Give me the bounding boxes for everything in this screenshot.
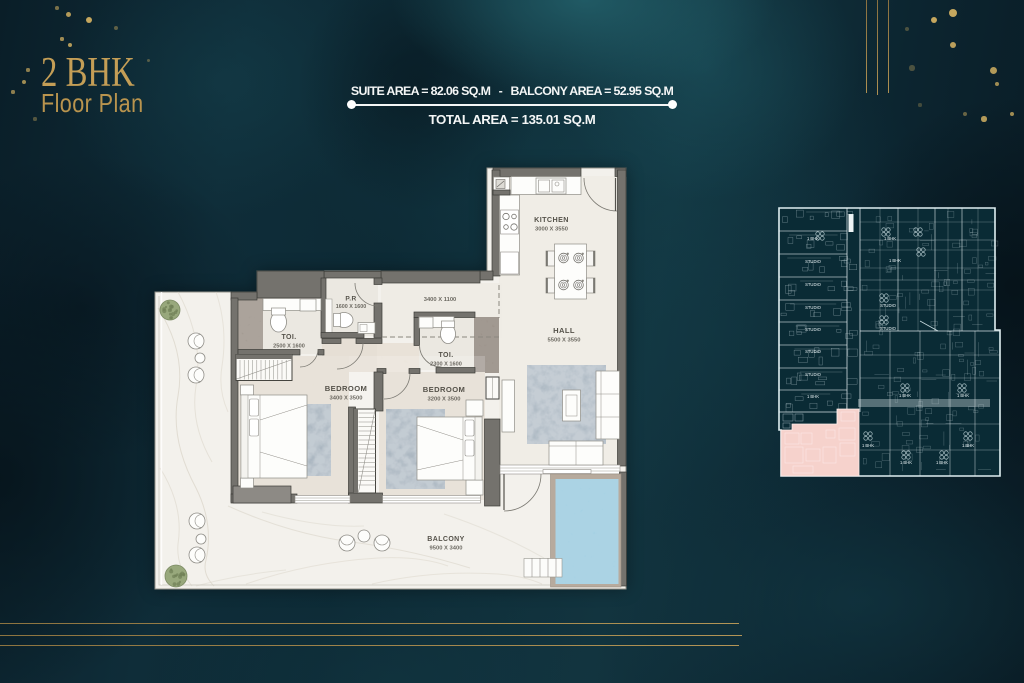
svg-text:2300 X 1600: 2300 X 1600 (430, 362, 462, 368)
svg-text:3200 X 3500: 3200 X 3500 (428, 397, 461, 403)
svg-text:P.R: P.R (345, 296, 356, 303)
svg-text:TOI.: TOI. (438, 352, 453, 359)
svg-text:2500 X 1600: 2500 X 1600 (273, 344, 305, 350)
svg-text:3400 X 1100: 3400 X 1100 (424, 297, 457, 303)
svg-text:STUDIO: STUDIO (805, 327, 822, 332)
svg-text:BALCONY: BALCONY (427, 536, 464, 543)
svg-text:1 BHK: 1 BHK (900, 460, 912, 465)
svg-text:STUDIO: STUDIO (805, 305, 822, 310)
svg-text:1 BHK: 1 BHK (962, 443, 974, 448)
svg-text:1 BHK: 1 BHK (889, 258, 901, 263)
svg-text:HALL: HALL (553, 326, 575, 335)
svg-text:1 BHK: 1 BHK (807, 236, 819, 241)
svg-text:1 BHK: 1 BHK (862, 443, 874, 448)
svg-text:3400 X 3500: 3400 X 3500 (330, 396, 363, 402)
svg-text:STUDIO: STUDIO (805, 372, 822, 377)
svg-text:1 BHK: 1 BHK (899, 393, 911, 398)
svg-text:STUDIO: STUDIO (880, 326, 897, 331)
svg-text:KITCHEN: KITCHEN (534, 215, 569, 224)
svg-text:STUDIO: STUDIO (805, 259, 822, 264)
svg-text:3000 X 3550: 3000 X 3550 (535, 227, 568, 233)
svg-text:STUDIO: STUDIO (805, 282, 822, 287)
svg-text:STUDIO: STUDIO (805, 349, 822, 354)
svg-text:5500 X 3550: 5500 X 3550 (548, 338, 581, 344)
svg-text:STUDIO: STUDIO (880, 303, 897, 308)
svg-text:1 BHK: 1 BHK (936, 460, 948, 465)
svg-text:1600 X 1600: 1600 X 1600 (336, 304, 367, 310)
svg-text:BEDROOM: BEDROOM (423, 385, 465, 394)
svg-text:TOI.: TOI. (281, 334, 296, 341)
svg-text:1 BHK: 1 BHK (807, 394, 819, 399)
svg-text:9500 X 3400: 9500 X 3400 (430, 546, 463, 552)
svg-text:1 BHK: 1 BHK (957, 393, 969, 398)
svg-text:1 BHK: 1 BHK (884, 236, 896, 241)
svg-text:BEDROOM: BEDROOM (325, 384, 367, 393)
